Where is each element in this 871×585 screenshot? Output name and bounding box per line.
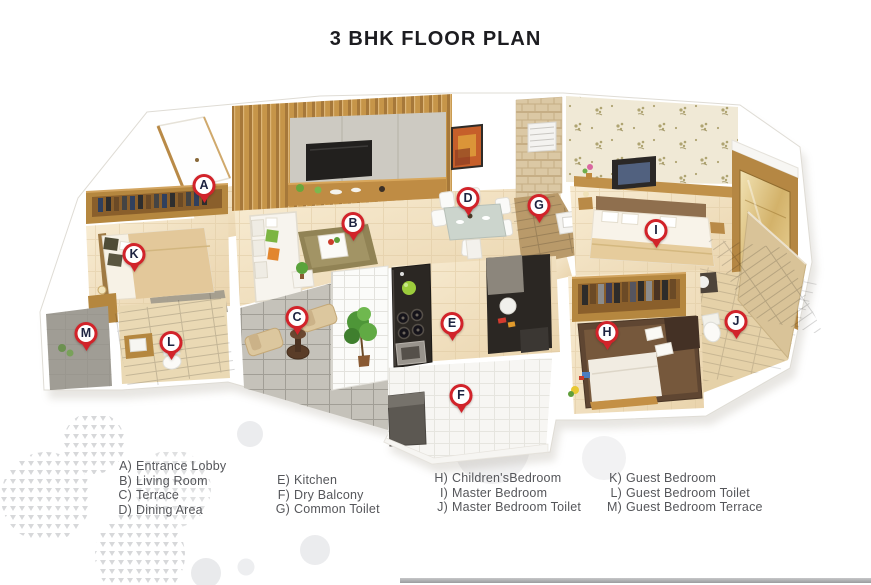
legend-item-label: Dry Balcony [294,488,364,502]
legend-item: D)Dining Area [108,503,226,518]
legend-item-key: C) [108,488,132,503]
room-guest-toilet [113,291,236,392]
legend-item-label: Master Bedroom Toilet [452,500,581,514]
legend-item: I)Master Bedroom [424,486,581,501]
legend-item-label: Entrance Lobby [136,459,226,473]
legend-item: F)Dry Balcony [266,488,380,503]
legend-item-key: K) [598,471,622,486]
room-guest-terrace [46,306,112,390]
wall-painting [452,125,482,169]
legend-item-label: Guest Bedroom [626,471,716,485]
legend-item: J)Master Bedroom Toilet [424,500,581,515]
legend-item-key: A) [108,459,132,474]
legend-item-key: J) [424,500,448,515]
legend-item-label: Kitchen [294,473,337,487]
legend-item-key: M) [598,500,622,515]
floor-plan-poster: ABCDEFGHIJKLM 3 BHK FLOOR PLAN A)Entranc… [0,0,871,585]
legend-item: M)Guest Bedroom Terrace [598,500,763,515]
legend-item-key: B) [108,474,132,489]
legend-item-key: D) [108,503,132,518]
legend-item-label: Master Bedroom [452,486,547,500]
legend-item: K)Guest Bedroom [598,471,763,486]
legend-item-key: F) [266,488,290,503]
tv-wall [232,94,452,211]
legend-item-label: Dining Area [136,503,203,517]
legend-item-key: L) [598,486,622,501]
sofa [250,212,302,302]
legend-column: E)KitchenF)Dry BalconyG)Common Toilet [266,473,380,517]
legend-item-label: Living Room [136,474,208,488]
legend-column: K)Guest BedroomL)Guest Bedroom ToiletM)G… [598,471,763,515]
room-kitchen [392,254,560,368]
legend-item-label: Common Toilet [294,502,380,516]
room-children-bedroom [568,270,704,414]
legend-column: H)Children'sBedroomI)Master BedroomJ)Mas… [424,471,581,515]
legend-item: H)Children'sBedroom [424,471,581,486]
legend-item-label: Guest Bedroom Terrace [626,500,763,514]
legend-item-key: E) [266,473,290,488]
legend-item-key: H) [424,471,448,486]
legend-item-key: G) [266,502,290,517]
legend-item-label: Children'sBedroom [452,471,561,485]
legend-item: G)Common Toilet [266,502,380,517]
legend-item-label: Guest Bedroom Toilet [626,486,750,500]
legend-item: E)Kitchen [266,473,380,488]
legend-column: A)Entrance LobbyB)Living RoomC)TerraceD)… [108,459,226,517]
room-dry-balcony [384,358,552,464]
legend-item-label: Terrace [136,488,179,502]
legend-item: L)Guest Bedroom Toilet [598,486,763,501]
legend-item-key: I) [424,486,448,501]
legend-item: B)Living Room [108,474,226,489]
bottom-divider-bar [400,578,871,583]
page-title: 3 BHK FLOOR PLAN [0,28,871,51]
legend-item: C)Terrace [108,488,226,503]
legend-item: A)Entrance Lobby [108,459,226,474]
